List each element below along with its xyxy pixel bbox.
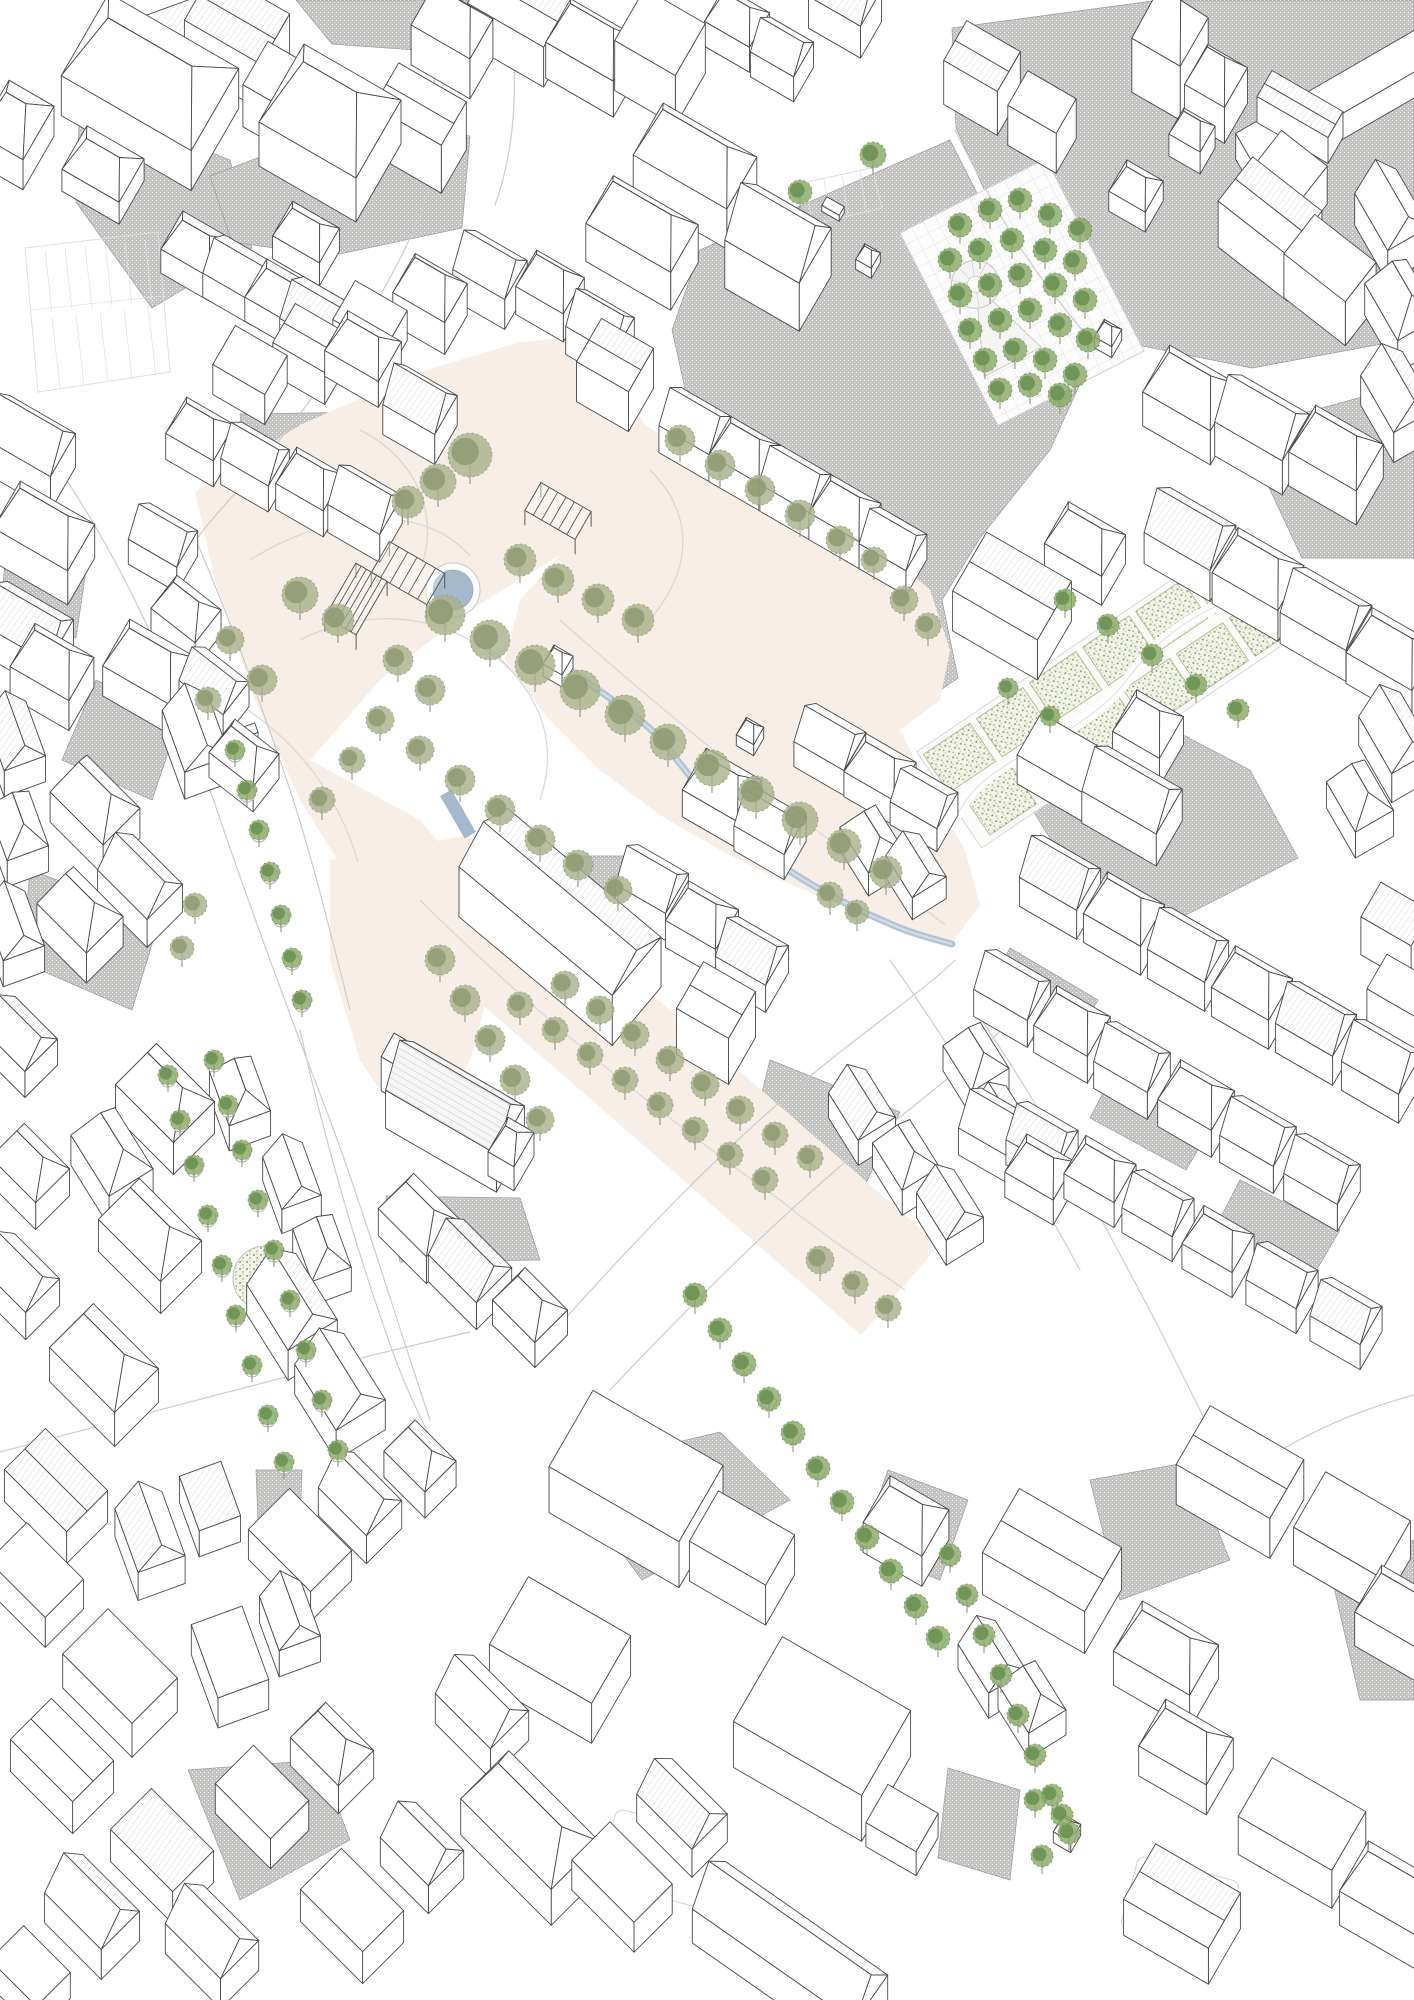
tree-canopy-inner bbox=[325, 608, 345, 628]
tree-canopy-inner bbox=[417, 678, 436, 697]
tree-canopy-inner bbox=[186, 1157, 198, 1169]
tree-canopy-inner bbox=[1050, 386, 1065, 401]
tree-canopy-inner bbox=[710, 1321, 725, 1336]
tree-canopy-inner bbox=[1000, 680, 1012, 692]
tree-canopy-inner bbox=[273, 907, 285, 919]
tree-canopy-inner bbox=[1042, 708, 1054, 720]
tree-canopy-inner bbox=[427, 948, 446, 967]
tree-canopy-inner bbox=[220, 1097, 232, 1109]
tree-canopy-inner bbox=[250, 1192, 262, 1204]
tree-canopy-inner bbox=[881, 1562, 896, 1577]
tree-canopy-inner bbox=[734, 1355, 749, 1370]
tree-canopy-inner bbox=[873, 860, 893, 880]
tree-canopy-inner bbox=[787, 503, 806, 522]
tree-canopy-inner bbox=[857, 1528, 872, 1543]
tree-canopy-inner bbox=[990, 311, 1005, 326]
tree-canopy-inner bbox=[553, 974, 570, 991]
tree-canopy-inner bbox=[608, 699, 633, 724]
tree-canopy-inner bbox=[940, 251, 955, 266]
tree-canopy-inner bbox=[970, 241, 985, 256]
tree-canopy-inner bbox=[980, 276, 995, 291]
tree-canopy-inner bbox=[507, 548, 527, 568]
tree-canopy-inner bbox=[218, 629, 235, 646]
tree-canopy-inner bbox=[697, 754, 719, 776]
tree-canopy-inner bbox=[1026, 1746, 1040, 1760]
tree-canopy-inner bbox=[185, 896, 200, 911]
tree-canopy-inner bbox=[314, 1392, 326, 1404]
tree-canopy-inner bbox=[330, 1442, 342, 1454]
tree-canopy-inner bbox=[294, 992, 306, 1004]
tree-canopy-inner bbox=[447, 768, 466, 787]
tree-canopy-inner bbox=[917, 616, 933, 632]
tree-canopy-inner bbox=[452, 438, 479, 465]
tree-canopy-inner bbox=[509, 995, 525, 1011]
tree-canopy-inner bbox=[473, 624, 498, 649]
tree-canopy-inner bbox=[685, 1286, 700, 1301]
tree-canopy-inner bbox=[906, 1597, 921, 1612]
tree-canopy-inner bbox=[239, 782, 251, 794]
tree-canopy-inner bbox=[487, 798, 506, 817]
masterplan-canvas bbox=[0, 0, 1414, 2000]
tree-canopy-inner bbox=[1033, 1847, 1047, 1861]
tree-canopy-inner bbox=[892, 589, 909, 606]
tree-canopy-inner bbox=[214, 1257, 226, 1269]
tree-canopy-inner bbox=[928, 1629, 943, 1644]
tree-canopy-inner bbox=[614, 1070, 630, 1086]
tree-canopy-inner bbox=[728, 1099, 745, 1116]
tree-canopy-inner bbox=[783, 1424, 798, 1439]
tree-canopy-inner bbox=[172, 939, 187, 954]
tree-canopy-inner bbox=[658, 1049, 675, 1066]
tree-canopy-inner bbox=[747, 478, 766, 497]
tree-canopy-inner bbox=[197, 690, 213, 706]
tree-canopy-inner bbox=[1045, 276, 1060, 291]
tree-canopy-inner bbox=[1075, 291, 1090, 306]
tree-canopy-inner bbox=[311, 790, 327, 806]
tree-canopy-inner bbox=[830, 833, 851, 854]
tree-canopy-inner bbox=[249, 668, 268, 687]
tree-canopy-inner bbox=[754, 1170, 770, 1186]
tree-canopy-inner bbox=[741, 780, 763, 802]
tree-canopy-inner bbox=[992, 1666, 1006, 1680]
tree-canopy-inner bbox=[877, 1298, 893, 1314]
tree-canopy-inner bbox=[160, 1067, 172, 1079]
tree-canopy-inner bbox=[950, 216, 965, 231]
tree-canopy-inner bbox=[1010, 266, 1025, 281]
tree-canopy-inner bbox=[653, 728, 675, 750]
tree-canopy-inner bbox=[684, 1120, 700, 1136]
tree-canopy-inner bbox=[764, 1125, 780, 1141]
tree-canopy-inner bbox=[1056, 591, 1070, 605]
tree-canopy-inner bbox=[368, 709, 385, 726]
tree-canopy-inner bbox=[990, 381, 1005, 396]
tree-canopy-inner bbox=[1053, 1806, 1067, 1820]
tree-canopy-inner bbox=[863, 550, 879, 566]
tree-canopy-inner bbox=[428, 599, 453, 624]
tree-canopy-inner bbox=[1035, 241, 1050, 256]
tree-canopy-inner bbox=[1187, 676, 1201, 690]
tree-canopy-inner bbox=[960, 321, 975, 336]
tree-canopy-inner bbox=[585, 588, 605, 608]
tree-canopy-inner bbox=[172, 1112, 184, 1124]
tree-canopy-inner bbox=[285, 581, 307, 603]
tree-canopy-inner bbox=[975, 1626, 989, 1640]
tree-canopy-inner bbox=[625, 608, 645, 628]
tree-canopy-inner bbox=[276, 1454, 288, 1466]
tree-canopy-inner bbox=[790, 183, 805, 198]
tree-canopy-inner bbox=[808, 1249, 825, 1266]
tree-canopy-inner bbox=[206, 1052, 218, 1064]
tree-canopy-inner bbox=[719, 1145, 735, 1161]
tree-canopy-inner bbox=[759, 1390, 774, 1405]
tree-canopy-inner bbox=[958, 1586, 972, 1600]
tree-canopy-inner bbox=[1026, 1791, 1040, 1805]
tree-canopy-inner bbox=[975, 351, 990, 366]
tree-canopy-inner bbox=[707, 453, 726, 472]
tree-canopy-inner bbox=[408, 739, 425, 756]
tree-canopy-inner bbox=[1050, 316, 1065, 331]
tree-canopy-inner bbox=[244, 1357, 256, 1369]
tree-canopy-inner bbox=[579, 1045, 595, 1061]
tree-canopy-inner bbox=[284, 950, 296, 962]
tree-canopy-inner bbox=[1065, 366, 1080, 381]
tree-canopy-inner bbox=[518, 649, 543, 674]
tree-canopy-inner bbox=[862, 145, 878, 161]
tree-canopy-inner bbox=[528, 1109, 545, 1126]
tree-canopy-inner bbox=[1020, 376, 1035, 391]
tree-canopy-inner bbox=[785, 806, 807, 828]
tree-canopy-inner bbox=[228, 1307, 240, 1319]
tree-canopy-inner bbox=[799, 1148, 815, 1164]
tree-canopy-inner bbox=[1020, 301, 1035, 316]
tree-canopy-inner bbox=[1229, 701, 1243, 715]
tree-canopy-inner bbox=[260, 1407, 272, 1419]
tree-canopy-inner bbox=[477, 1028, 496, 1047]
tree-canopy-inner bbox=[1002, 231, 1017, 246]
tree-canopy-inner bbox=[832, 1493, 847, 1508]
tree-canopy-inner bbox=[262, 864, 274, 876]
tree-canopy-inner bbox=[527, 828, 546, 847]
tree-canopy-inner bbox=[1010, 191, 1025, 206]
axonometric-site-plan-drawing bbox=[0, 0, 1414, 2000]
tree-canopy-inner bbox=[1035, 351, 1050, 366]
tree-canopy-inner bbox=[1078, 331, 1093, 346]
tree-canopy-inner bbox=[667, 428, 686, 447]
tree-canopy-inner bbox=[385, 648, 404, 667]
tree-canopy-inner bbox=[565, 853, 584, 872]
tree-canopy-inner bbox=[563, 674, 588, 699]
tree-canopy-inner bbox=[588, 999, 605, 1016]
tree-canopy-inner bbox=[828, 529, 845, 546]
tree-canopy-inner bbox=[1143, 646, 1157, 660]
tree-canopy-inner bbox=[544, 1020, 560, 1036]
tree-canopy-inner bbox=[808, 1459, 823, 1474]
tree-canopy-inner bbox=[623, 1024, 640, 1041]
tree-canopy-inner bbox=[693, 1074, 710, 1091]
tree-canopy-inner bbox=[545, 568, 565, 588]
tree-canopy-inner bbox=[819, 885, 835, 901]
tree-canopy-inner bbox=[1009, 1706, 1023, 1720]
tree-canopy-inner bbox=[950, 286, 965, 301]
tree-canopy-inner bbox=[452, 988, 471, 1007]
tree-canopy-inner bbox=[649, 1095, 665, 1111]
tree-canopy-inner bbox=[227, 742, 239, 754]
tree-canopy-inner bbox=[502, 1068, 521, 1087]
tree-canopy-inner bbox=[980, 201, 995, 216]
tree-canopy-inner bbox=[1040, 206, 1055, 221]
tree-canopy-inner bbox=[847, 903, 862, 918]
tree-canopy-inner bbox=[1099, 616, 1113, 630]
tree-canopy-inner bbox=[341, 750, 357, 766]
tree-canopy-inner bbox=[941, 1546, 955, 1560]
tree-canopy-inner bbox=[606, 879, 623, 896]
tree-canopy-inner bbox=[1005, 341, 1020, 356]
tree-canopy-inner bbox=[1065, 253, 1080, 268]
tree-canopy-inner bbox=[298, 1342, 310, 1354]
tree-canopy-inner bbox=[423, 468, 445, 490]
tree-canopy-inner bbox=[844, 1274, 860, 1290]
tree-canopy-inner bbox=[1070, 221, 1085, 236]
tree-canopy-inner bbox=[234, 1142, 246, 1154]
tree-canopy-inner bbox=[200, 1207, 212, 1219]
tree-canopy-inner bbox=[395, 490, 415, 510]
tree-canopy-inner bbox=[282, 1292, 294, 1304]
tree-canopy-inner bbox=[266, 1242, 278, 1254]
tree-canopy-inner bbox=[251, 822, 263, 834]
